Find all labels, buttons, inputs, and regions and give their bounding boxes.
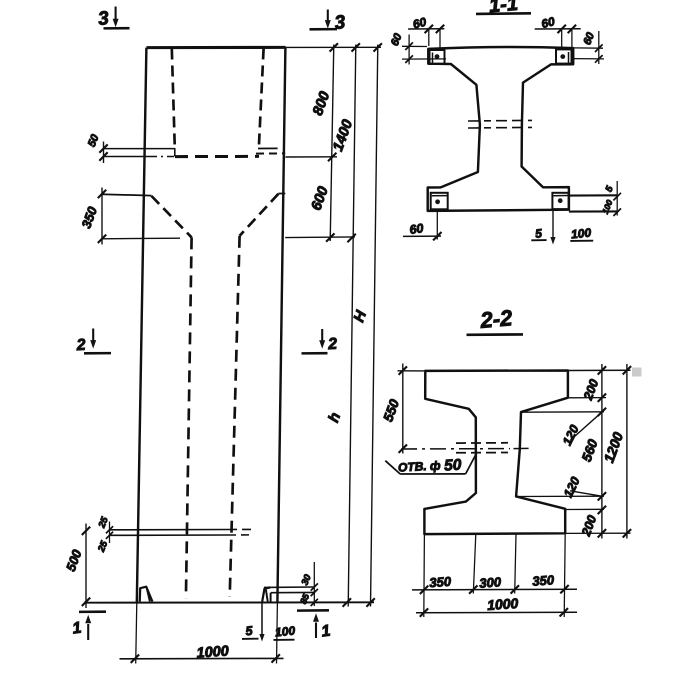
svg-text:ОТВ. ф: ОТВ. ф — [398, 458, 442, 474]
svg-text:5: 5 — [604, 184, 616, 194]
svg-text:H: H — [350, 307, 370, 324]
svg-text:1: 1 — [320, 622, 331, 640]
svg-text:60: 60 — [409, 221, 425, 237]
svg-text:h: h — [325, 410, 344, 424]
svg-text:800: 800 — [310, 90, 333, 118]
svg-text:5: 5 — [535, 226, 543, 241]
svg-text:2: 2 — [75, 337, 86, 355]
svg-text:2-2: 2-2 — [478, 305, 514, 333]
svg-text:5: 5 — [245, 624, 254, 639]
svg-text:50: 50 — [444, 457, 462, 475]
svg-text:600: 600 — [309, 185, 332, 213]
svg-text:50: 50 — [86, 132, 102, 149]
svg-text:120: 120 — [560, 423, 582, 448]
svg-text:1: 1 — [71, 619, 82, 637]
svg-text:30: 30 — [300, 572, 314, 587]
svg-text:560: 560 — [579, 437, 601, 464]
svg-text:350: 350 — [429, 574, 452, 591]
svg-text:200: 200 — [581, 377, 602, 402]
svg-text:350: 350 — [79, 204, 101, 230]
svg-text:100: 100 — [600, 198, 615, 215]
svg-text:200: 200 — [579, 513, 600, 538]
svg-text:350: 350 — [532, 572, 555, 589]
svg-text:1000: 1000 — [487, 595, 519, 613]
svg-text:1400: 1400 — [330, 118, 356, 154]
svg-text:1200: 1200 — [600, 430, 626, 465]
svg-text:100: 100 — [570, 225, 592, 241]
svg-text:550: 550 — [380, 397, 402, 424]
svg-text:25: 25 — [96, 539, 111, 555]
svg-text:2: 2 — [327, 336, 338, 354]
svg-text:300: 300 — [479, 574, 502, 591]
svg-text:3: 3 — [334, 12, 347, 34]
svg-text:25: 25 — [96, 515, 111, 531]
svg-text:60: 60 — [389, 31, 405, 48]
svg-text:1000: 1000 — [196, 643, 229, 661]
svg-text:3: 3 — [97, 8, 110, 30]
svg-text:500: 500 — [63, 547, 85, 573]
svg-text:60: 60 — [581, 30, 597, 47]
